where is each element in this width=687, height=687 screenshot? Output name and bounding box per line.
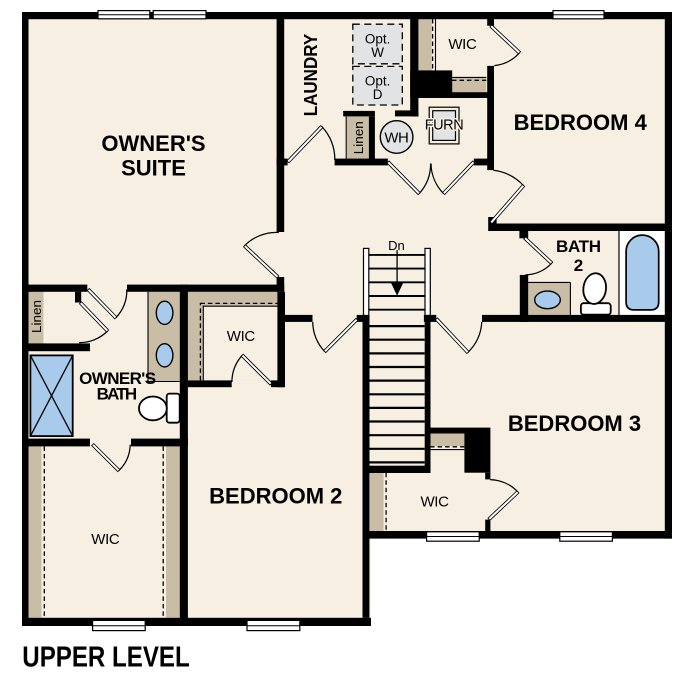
svg-text:SUITE: SUITE bbox=[121, 156, 186, 181]
svg-text:Dn: Dn bbox=[388, 238, 405, 253]
svg-text:WIC: WIC bbox=[420, 493, 449, 510]
svg-text:2: 2 bbox=[574, 256, 583, 275]
svg-text:LAUNDRY: LAUNDRY bbox=[300, 33, 321, 116]
svg-text:BEDROOM 3: BEDROOM 3 bbox=[508, 411, 641, 436]
svg-text:W: W bbox=[371, 45, 384, 60]
svg-text:BATH: BATH bbox=[97, 385, 137, 404]
svg-text:UPPER LEVEL: UPPER LEVEL bbox=[22, 641, 189, 673]
svg-text:BEDROOM 2: BEDROOM 2 bbox=[209, 484, 342, 509]
svg-text:BATH: BATH bbox=[556, 237, 601, 256]
svg-text:WIC: WIC bbox=[448, 36, 477, 53]
svg-text:WH: WH bbox=[384, 129, 408, 146]
svg-text:OWNER'S: OWNER'S bbox=[101, 131, 205, 156]
svg-text:BEDROOM 4: BEDROOM 4 bbox=[514, 110, 648, 135]
svg-text:WIC: WIC bbox=[227, 328, 256, 345]
svg-text:Linen: Linen bbox=[352, 121, 366, 154]
svg-text:WIC: WIC bbox=[91, 531, 120, 548]
svg-text:D: D bbox=[373, 87, 383, 102]
svg-text:Linen: Linen bbox=[30, 300, 44, 333]
svg-text:FURN: FURN bbox=[425, 118, 464, 134]
